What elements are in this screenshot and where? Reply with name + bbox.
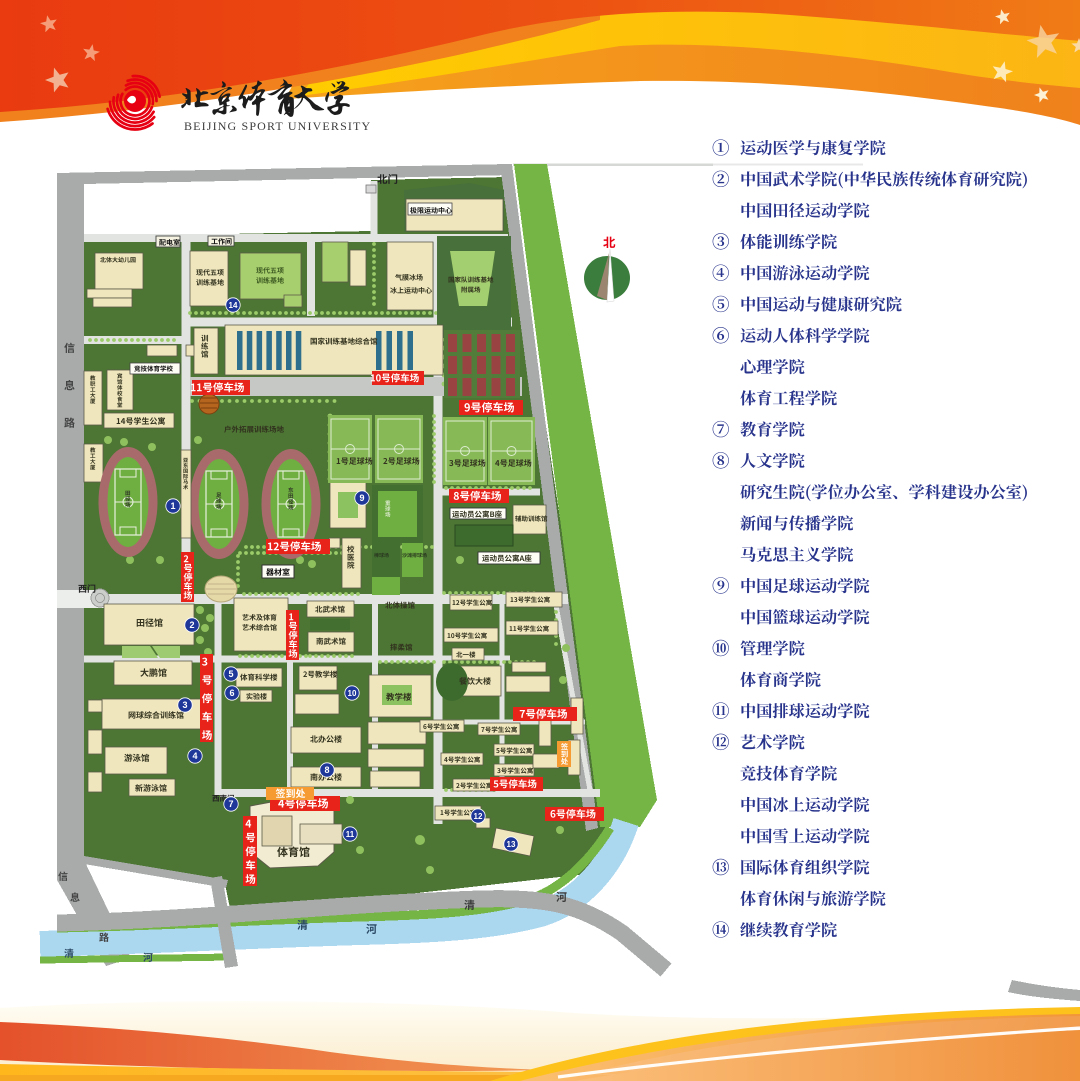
svg-text:9: 9	[359, 493, 364, 503]
svg-text:12: 12	[474, 812, 483, 821]
svg-text:5: 5	[228, 669, 233, 679]
svg-text:10: 10	[348, 689, 357, 698]
svg-text:8: 8	[324, 765, 329, 775]
svg-text:7: 7	[228, 799, 233, 809]
svg-text:11: 11	[346, 830, 355, 839]
svg-text:4: 4	[192, 751, 197, 761]
svg-text:13: 13	[507, 840, 516, 849]
svg-text:14: 14	[229, 301, 238, 310]
svg-text:1: 1	[170, 501, 175, 511]
svg-text:6: 6	[229, 688, 234, 698]
svg-text:3: 3	[182, 700, 187, 710]
svg-text:2: 2	[189, 620, 194, 630]
svg-text:BEIJING SPORT UNIVERSITY: BEIJING SPORT UNIVERSITY	[184, 119, 371, 133]
